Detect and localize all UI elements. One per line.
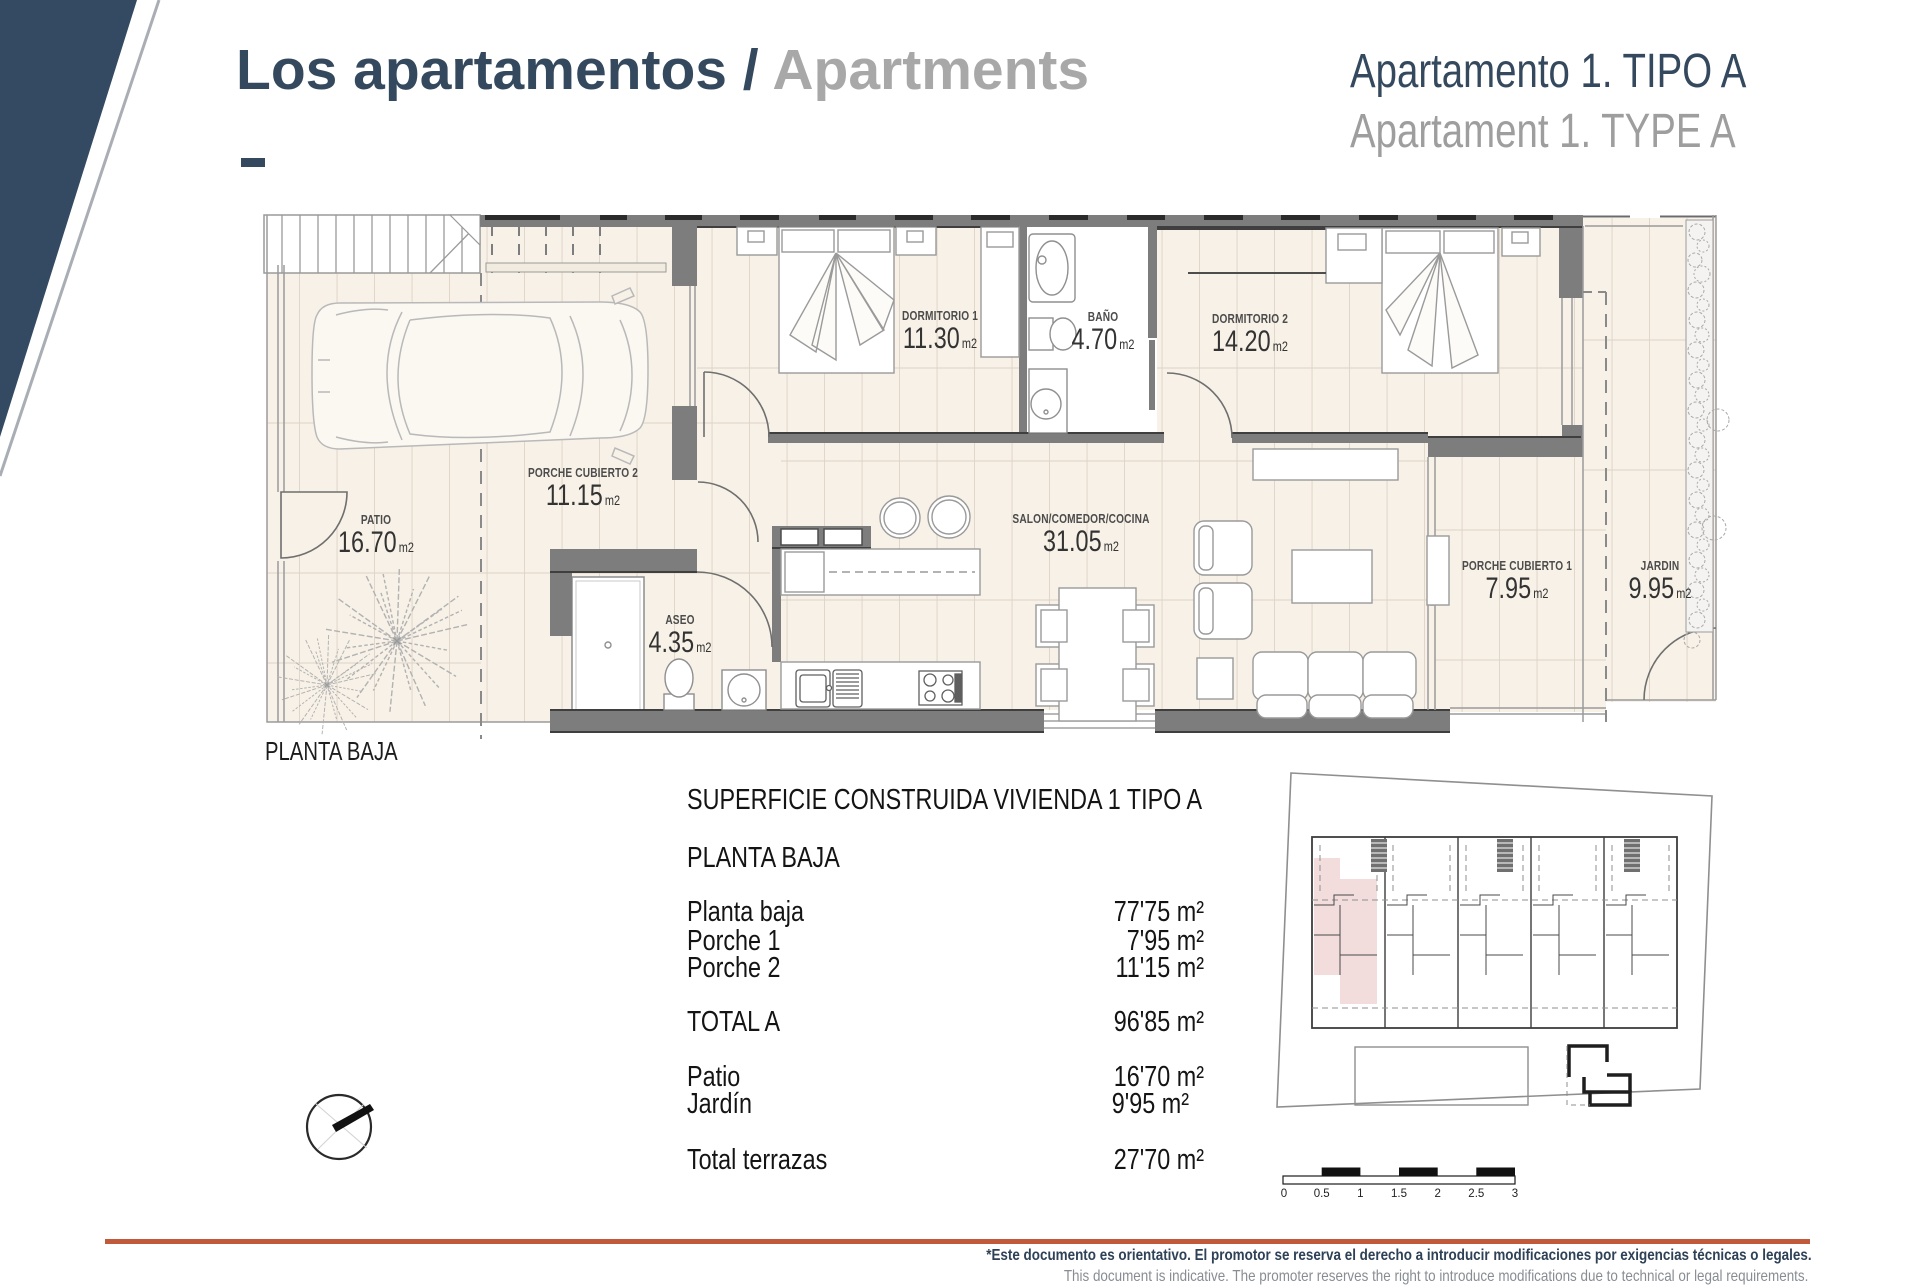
svg-text:1.5: 1.5 (1391, 1188, 1407, 1200)
svg-text:0: 0 (1281, 1188, 1287, 1200)
svg-text:0.5: 0.5 (1314, 1188, 1330, 1200)
svg-text:3: 3 (1512, 1188, 1518, 1200)
svg-text:2.5: 2.5 (1468, 1188, 1484, 1200)
svg-text:1: 1 (1357, 1188, 1363, 1200)
svg-text:2: 2 (1434, 1188, 1440, 1200)
